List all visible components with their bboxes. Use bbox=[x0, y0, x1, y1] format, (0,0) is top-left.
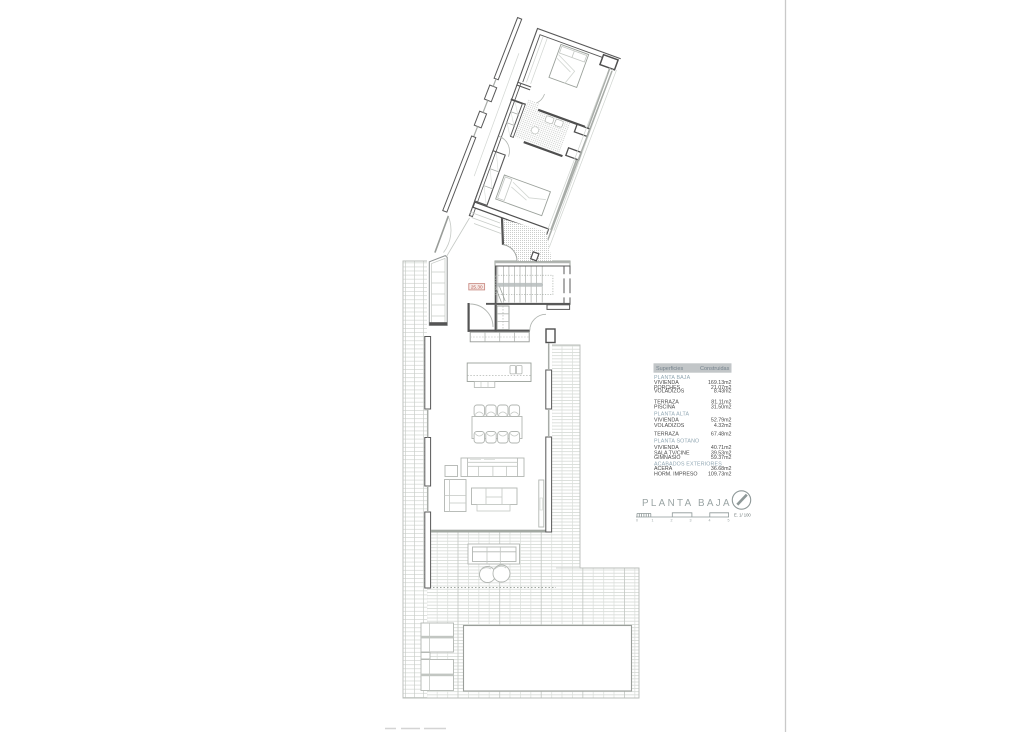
svg-text:3: 3 bbox=[690, 519, 692, 523]
svg-text:67.48m2: 67.48m2 bbox=[711, 431, 732, 437]
svg-text:PLANTA BAJA: PLANTA BAJA bbox=[642, 498, 732, 509]
svg-text:Construidas: Construidas bbox=[700, 366, 730, 372]
svg-text:Superficies: Superficies bbox=[656, 366, 683, 372]
svg-text:1: 1 bbox=[652, 519, 654, 523]
svg-text:GIMNASIO: GIMNASIO bbox=[654, 455, 681, 461]
svg-text:59.37m2: 59.37m2 bbox=[711, 455, 732, 461]
svg-text:HORM. IMPRESO: HORM. IMPRESO bbox=[654, 472, 698, 478]
svg-text:5: 5 bbox=[728, 519, 730, 523]
svg-text:25.30: 25.30 bbox=[471, 285, 483, 290]
svg-text:E. 1/ 100: E. 1/ 100 bbox=[734, 513, 751, 518]
svg-text:VOLADIZOS: VOLADIZOS bbox=[654, 389, 685, 395]
svg-text:VOLADIZOS: VOLADIZOS bbox=[654, 423, 685, 429]
svg-text:2: 2 bbox=[671, 519, 673, 523]
svg-text:8.43m2: 8.43m2 bbox=[714, 389, 732, 395]
svg-text:4.32m2: 4.32m2 bbox=[714, 423, 732, 429]
svg-text:PISCINA: PISCINA bbox=[654, 405, 676, 411]
svg-text:TERRAZA: TERRAZA bbox=[654, 431, 679, 437]
svg-text:4: 4 bbox=[709, 519, 711, 523]
svg-text:PLANTA SOTANO: PLANTA SOTANO bbox=[654, 439, 699, 445]
svg-text:0: 0 bbox=[636, 519, 638, 523]
svg-text:109.73m2: 109.73m2 bbox=[708, 472, 732, 478]
svg-text:31.50m2: 31.50m2 bbox=[711, 405, 732, 411]
